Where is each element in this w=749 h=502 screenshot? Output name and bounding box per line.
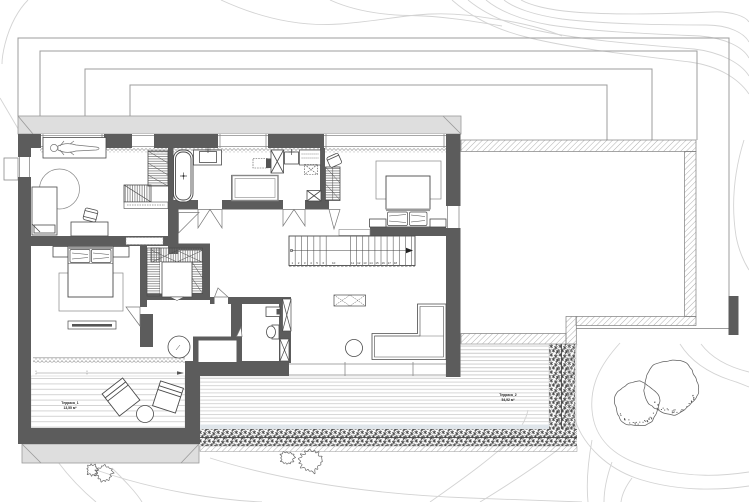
svg-text:54,92 м²: 54,92 м² bbox=[501, 398, 515, 402]
svg-text:11: 11 bbox=[351, 261, 354, 265]
svg-text:Терраса_1: Терраса_1 bbox=[61, 401, 79, 405]
svg-text:12: 12 bbox=[357, 261, 361, 265]
svg-text:17: 17 bbox=[388, 261, 392, 265]
svg-text:15: 15 bbox=[375, 261, 379, 265]
svg-text:18: 18 bbox=[394, 261, 398, 265]
svg-text:10: 10 bbox=[332, 261, 336, 265]
svg-text:16: 16 bbox=[382, 261, 386, 265]
svg-text:14: 14 bbox=[369, 261, 373, 265]
svg-text:13: 13 bbox=[363, 261, 367, 265]
svg-text:Терраса_2: Терраса_2 bbox=[499, 393, 517, 397]
svg-text:13,55 м²: 13,55 м² bbox=[63, 406, 77, 410]
